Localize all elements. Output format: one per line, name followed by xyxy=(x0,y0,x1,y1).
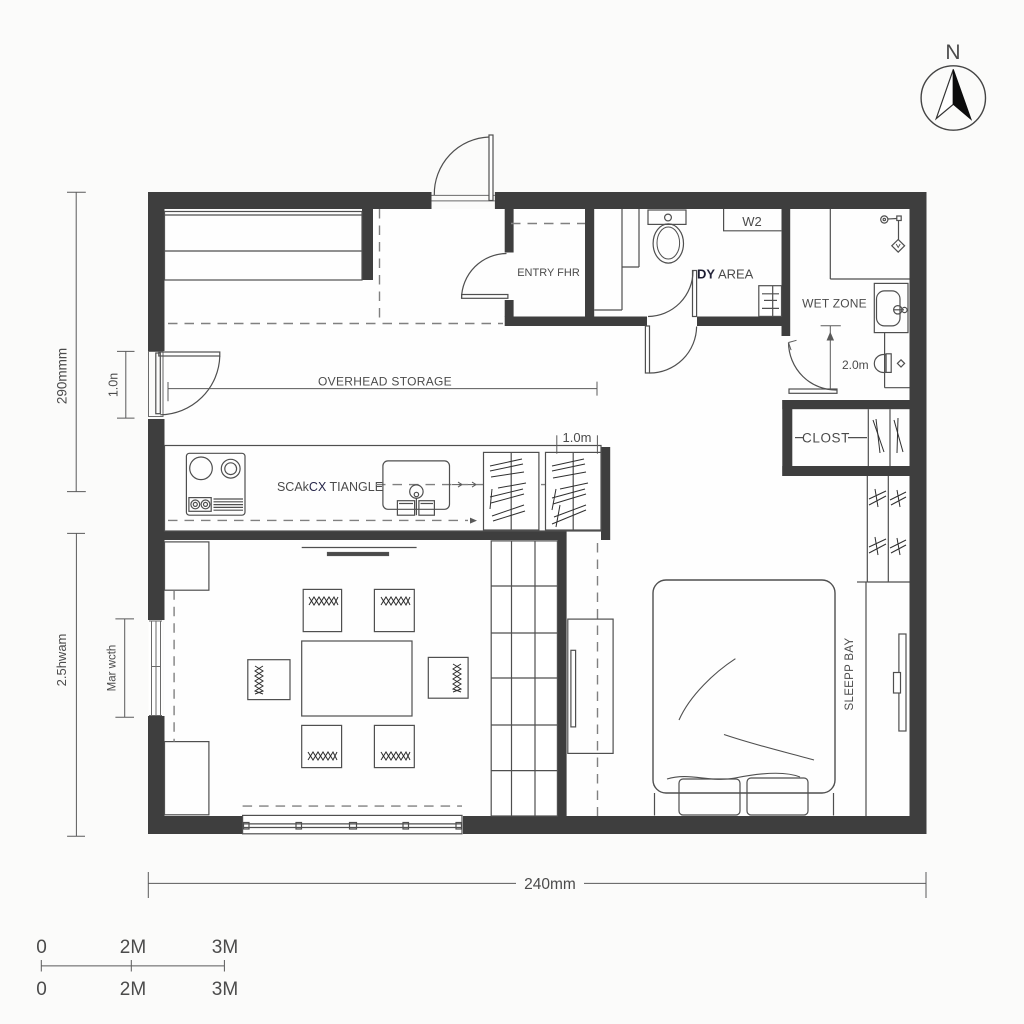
svg-text:2.5hwam: 2.5hwam xyxy=(54,634,69,687)
svg-text:SCAkCX TIANGLE: SCAkCX TIANGLE xyxy=(277,480,383,494)
svg-text:2.0m: 2.0m xyxy=(842,358,869,372)
svg-text:3M: 3M xyxy=(212,937,238,958)
svg-text:3M: 3M xyxy=(212,979,238,1000)
svg-text:Mar wcth: Mar wcth xyxy=(107,645,119,692)
svg-text:DY AREA: DY AREA xyxy=(697,267,754,282)
svg-text:2M: 2M xyxy=(120,937,146,958)
svg-text:0: 0 xyxy=(36,979,47,1000)
svg-text:SLEEPP BAY: SLEEPP BAY xyxy=(844,638,856,711)
svg-text:OVERHEAD STORAGE: OVERHEAD STORAGE xyxy=(318,375,452,389)
svg-text:290mmm: 290mmm xyxy=(55,348,70,404)
svg-text:ENTRY FHR: ENTRY FHR xyxy=(517,267,580,279)
svg-text:WET ZONE: WET ZONE xyxy=(802,297,867,311)
svg-text:N: N xyxy=(945,41,960,64)
svg-text:1.0n: 1.0n xyxy=(107,373,121,397)
svg-text:CLOST: CLOST xyxy=(802,431,850,446)
svg-text:240mm: 240mm xyxy=(524,876,576,893)
svg-text:2M: 2M xyxy=(120,979,146,1000)
svg-text:W2: W2 xyxy=(742,214,762,229)
svg-text:0: 0 xyxy=(36,937,47,958)
svg-text:1.0m: 1.0m xyxy=(563,430,592,445)
